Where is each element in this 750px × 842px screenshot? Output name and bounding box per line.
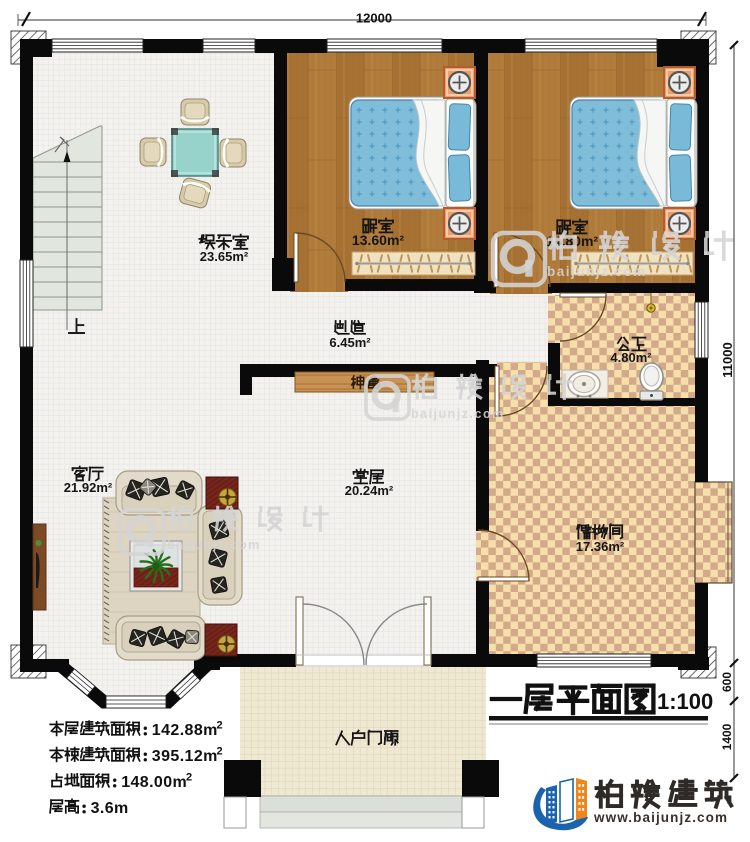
svg-text:142.88m: 142.88m: [152, 722, 218, 739]
svg-text:3.6m: 3.6m: [91, 800, 129, 817]
svg-text:1400: 1400: [720, 723, 734, 750]
svg-text:baijunjz.com: baijunjz.com: [411, 407, 505, 421]
svg-text:6.45m²: 6.45m²: [329, 335, 371, 350]
svg-text:11000: 11000: [720, 342, 735, 377]
svg-text:4.80m²: 4.80m²: [610, 350, 652, 365]
svg-text:www.baijunjz.com: www.baijunjz.com: [593, 810, 728, 825]
svg-text:17.36m²: 17.36m²: [576, 539, 625, 554]
svg-text:1:100: 1:100: [657, 689, 713, 714]
svg-text:2: 2: [186, 772, 192, 784]
svg-text:23.65m²: 23.65m²: [200, 249, 249, 264]
svg-text:600: 600: [720, 672, 734, 692]
svg-text:12000: 12000: [356, 11, 392, 26]
svg-text:21.92m²: 21.92m²: [64, 480, 113, 495]
svg-text:2: 2: [217, 746, 223, 758]
svg-text:13.60m²: 13.60m²: [352, 232, 404, 248]
svg-text:2: 2: [217, 720, 223, 732]
svg-text:20.24m²: 20.24m²: [345, 483, 394, 498]
svg-text:395.12m: 395.12m: [152, 748, 218, 765]
svg-text:baijunjz.com: baijunjz.com: [167, 538, 261, 552]
svg-text:baijunjz.com: baijunjz.com: [547, 264, 647, 279]
svg-text:148.00m: 148.00m: [121, 774, 187, 791]
